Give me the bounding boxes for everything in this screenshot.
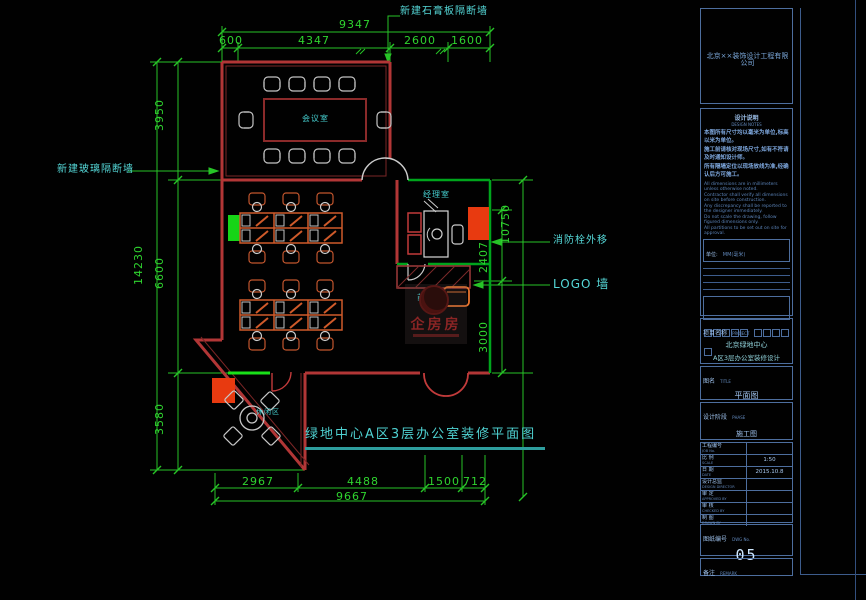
titleblock-drawing-box: 图名 TITLE 平面图: [700, 366, 793, 400]
project-label: 项目名称: [703, 330, 727, 337]
plan-title: 绿地中心A区3层办公室装修平面图: [305, 428, 536, 441]
titleblock-project-box: 项目名称 PROJECT 北京绿地中心 A区3层办公室装修设计: [700, 318, 793, 364]
dim-top-2: 4347: [298, 35, 330, 46]
workstation-cluster-b: [240, 280, 342, 350]
row-value: [747, 503, 792, 514]
dwg-sub: DWG No.: [732, 537, 750, 542]
titleblock-dwgno-box: 图纸编号 DWG No. 05: [700, 524, 793, 556]
dim-bottom-1: 2967: [242, 476, 274, 487]
project-name-line2: A区3层办公室装修设计: [701, 352, 792, 362]
phase-value: 施工图: [701, 429, 792, 439]
row-value: 1:50: [747, 455, 792, 466]
row-sub: JOB No.: [702, 449, 745, 453]
manager-office-furniture: [408, 199, 463, 257]
stamp-box: [703, 296, 790, 320]
table-row: 日 期DATE 2015.10.8: [701, 466, 792, 478]
leisure-door: [272, 372, 291, 391]
red-column: [212, 378, 235, 403]
dim-bottom-overall: 9667: [336, 491, 368, 502]
dim-bottom-4: 712: [463, 476, 487, 487]
dwg-label: 图纸编号: [703, 536, 727, 543]
row-sub: APPROVED BY: [702, 497, 745, 501]
title-underline: [305, 447, 545, 450]
dim-right-1: 2407: [478, 241, 489, 273]
sheet-frame-bottom: [800, 574, 866, 575]
dim-left-1: 3950: [154, 99, 165, 131]
revision-line: [703, 275, 790, 276]
annotation-glass-wall: 新建玻璃隔断墙: [57, 165, 134, 175]
note-line: 所有隔墙定位以现场放线为准,经确认后方可施工。: [704, 162, 789, 178]
note-line-en: Do not scale the drawing, follow figured…: [704, 215, 789, 225]
annotation-logo-wall: LOGO 墙: [553, 278, 609, 290]
dim-left-3: 3580: [154, 403, 165, 435]
phase-sub: PHASE: [732, 415, 745, 420]
conference-double-door: [362, 158, 408, 180]
dim-top-4: 1600: [451, 35, 483, 46]
guest-chair: [452, 225, 463, 244]
annotation-gypsum-wall: 新建石膏板隔断墙: [400, 7, 488, 17]
dim-top-3: 2600: [404, 35, 436, 46]
drawing-title-value: 平面图: [701, 390, 792, 401]
revision-line: [703, 268, 790, 269]
notes-subtitle: DESIGN NOTES: [701, 122, 792, 127]
walls-red-inner: [201, 66, 386, 467]
project-sub: PROJECT: [732, 331, 749, 336]
table-row: 审 核CHECKED BY: [701, 502, 792, 514]
company-name: 北京××装饰设计工程有限公司: [705, 53, 790, 67]
dim-left-2: 6600: [154, 257, 165, 289]
titleblock-remark-box: 备注 REMARK: [700, 558, 793, 576]
cabinet-2: [408, 235, 421, 254]
dim-top-1: 600: [219, 35, 243, 46]
unit-value: MM(毫米): [723, 252, 746, 258]
unit-label: 单位:: [706, 252, 718, 258]
notes-title: 设计说明: [701, 113, 792, 122]
titleblock-company-box: 北京××装饰设计工程有限公司: [700, 8, 793, 104]
entrance-double-door: [424, 373, 468, 396]
watermark: 企房房: [405, 284, 467, 344]
watermark-logo-icon: [419, 285, 449, 315]
titleblock-phase-box: 设计阶段 PHASE 施工图: [700, 402, 793, 440]
note-line-en: All dimensions are in millimeters unless…: [704, 182, 789, 192]
cabinet-1: [408, 213, 421, 232]
revision-line: [703, 289, 790, 290]
revision-line: [703, 282, 790, 283]
watermark-text: 企房房: [408, 314, 464, 334]
sheet-frame-inner: [800, 8, 801, 575]
remark-sub: REMARK: [720, 571, 737, 576]
table-row: 比 例SCALE 1:50: [701, 454, 792, 466]
dim-bottom-2: 4488: [347, 476, 379, 487]
drawing-sub: TITLE: [720, 379, 731, 384]
dim-left-overall: 14230: [133, 245, 144, 285]
dim-top-overall: 9347: [339, 19, 371, 30]
row-value: [747, 491, 792, 502]
dim-right-2: 3000: [478, 321, 489, 353]
titleblock-table: 工程编号JOB No. 比 例SCALE 1:50 日 期DATE 2015.1…: [700, 442, 793, 523]
note-line: 本图所有尺寸均以毫米为单位,标高以米为单位。: [704, 128, 789, 144]
dim-right-overall: 10750: [500, 204, 511, 244]
fire-hydrant-box: [468, 207, 489, 240]
row-value: [747, 479, 792, 490]
workstation-cluster-a: [240, 193, 342, 263]
dim-bottom-3: 1500: [428, 476, 460, 487]
titleblock-notes-box: 设计说明 DESIGN NOTES 本图所有尺寸均以毫米为单位,标高以米为单位。…: [700, 108, 793, 316]
annotation-fire-hydrant: 消防栓外移: [553, 236, 608, 246]
row-sub: DESIGN DIRECTOR: [702, 485, 745, 489]
cad-sheet: 新建石膏板隔断墙 新建玻璃隔断墙 消防栓外移 LOGO 墙 会议室 经理室 前台…: [0, 0, 866, 600]
table-row: 工程编号JOB No.: [701, 442, 792, 454]
table-row: 审 定APPROVED BY: [701, 490, 792, 502]
sheet-frame-outer: [855, 0, 856, 600]
note-line: 施工前请核对现场尺寸,如有不符请及时通知设计师。: [704, 145, 789, 161]
note-line-en: Contractor shall verify all dimensions o…: [704, 193, 789, 203]
drawing-label: 图名: [703, 378, 715, 385]
remark-label: 备注: [703, 570, 715, 577]
note-line-en: All partitions to be set out on site for…: [704, 226, 789, 236]
row-value: 2015.10.8: [747, 467, 792, 478]
note-line-en: Any discrepancy shall be reported to the…: [704, 204, 789, 214]
room-label-manager: 经理室: [423, 191, 450, 199]
row-sub: CHECKED BY: [702, 509, 745, 513]
room-label-conference: 会议室: [302, 115, 329, 123]
project-name-line1: 北京绿地中心: [701, 340, 792, 350]
row-sub: DATE: [702, 473, 745, 477]
phase-label: 设计阶段: [703, 414, 727, 421]
room-label-leisure: 休闲区: [256, 409, 280, 416]
row-sub: SCALE: [702, 461, 745, 465]
row-value: [747, 443, 792, 454]
watermark-subtext-bar: [413, 334, 459, 337]
table-row: 设计总监DESIGN DIRECTOR: [701, 478, 792, 490]
manager-chair: [432, 229, 442, 239]
green-cabinet: [228, 215, 240, 241]
